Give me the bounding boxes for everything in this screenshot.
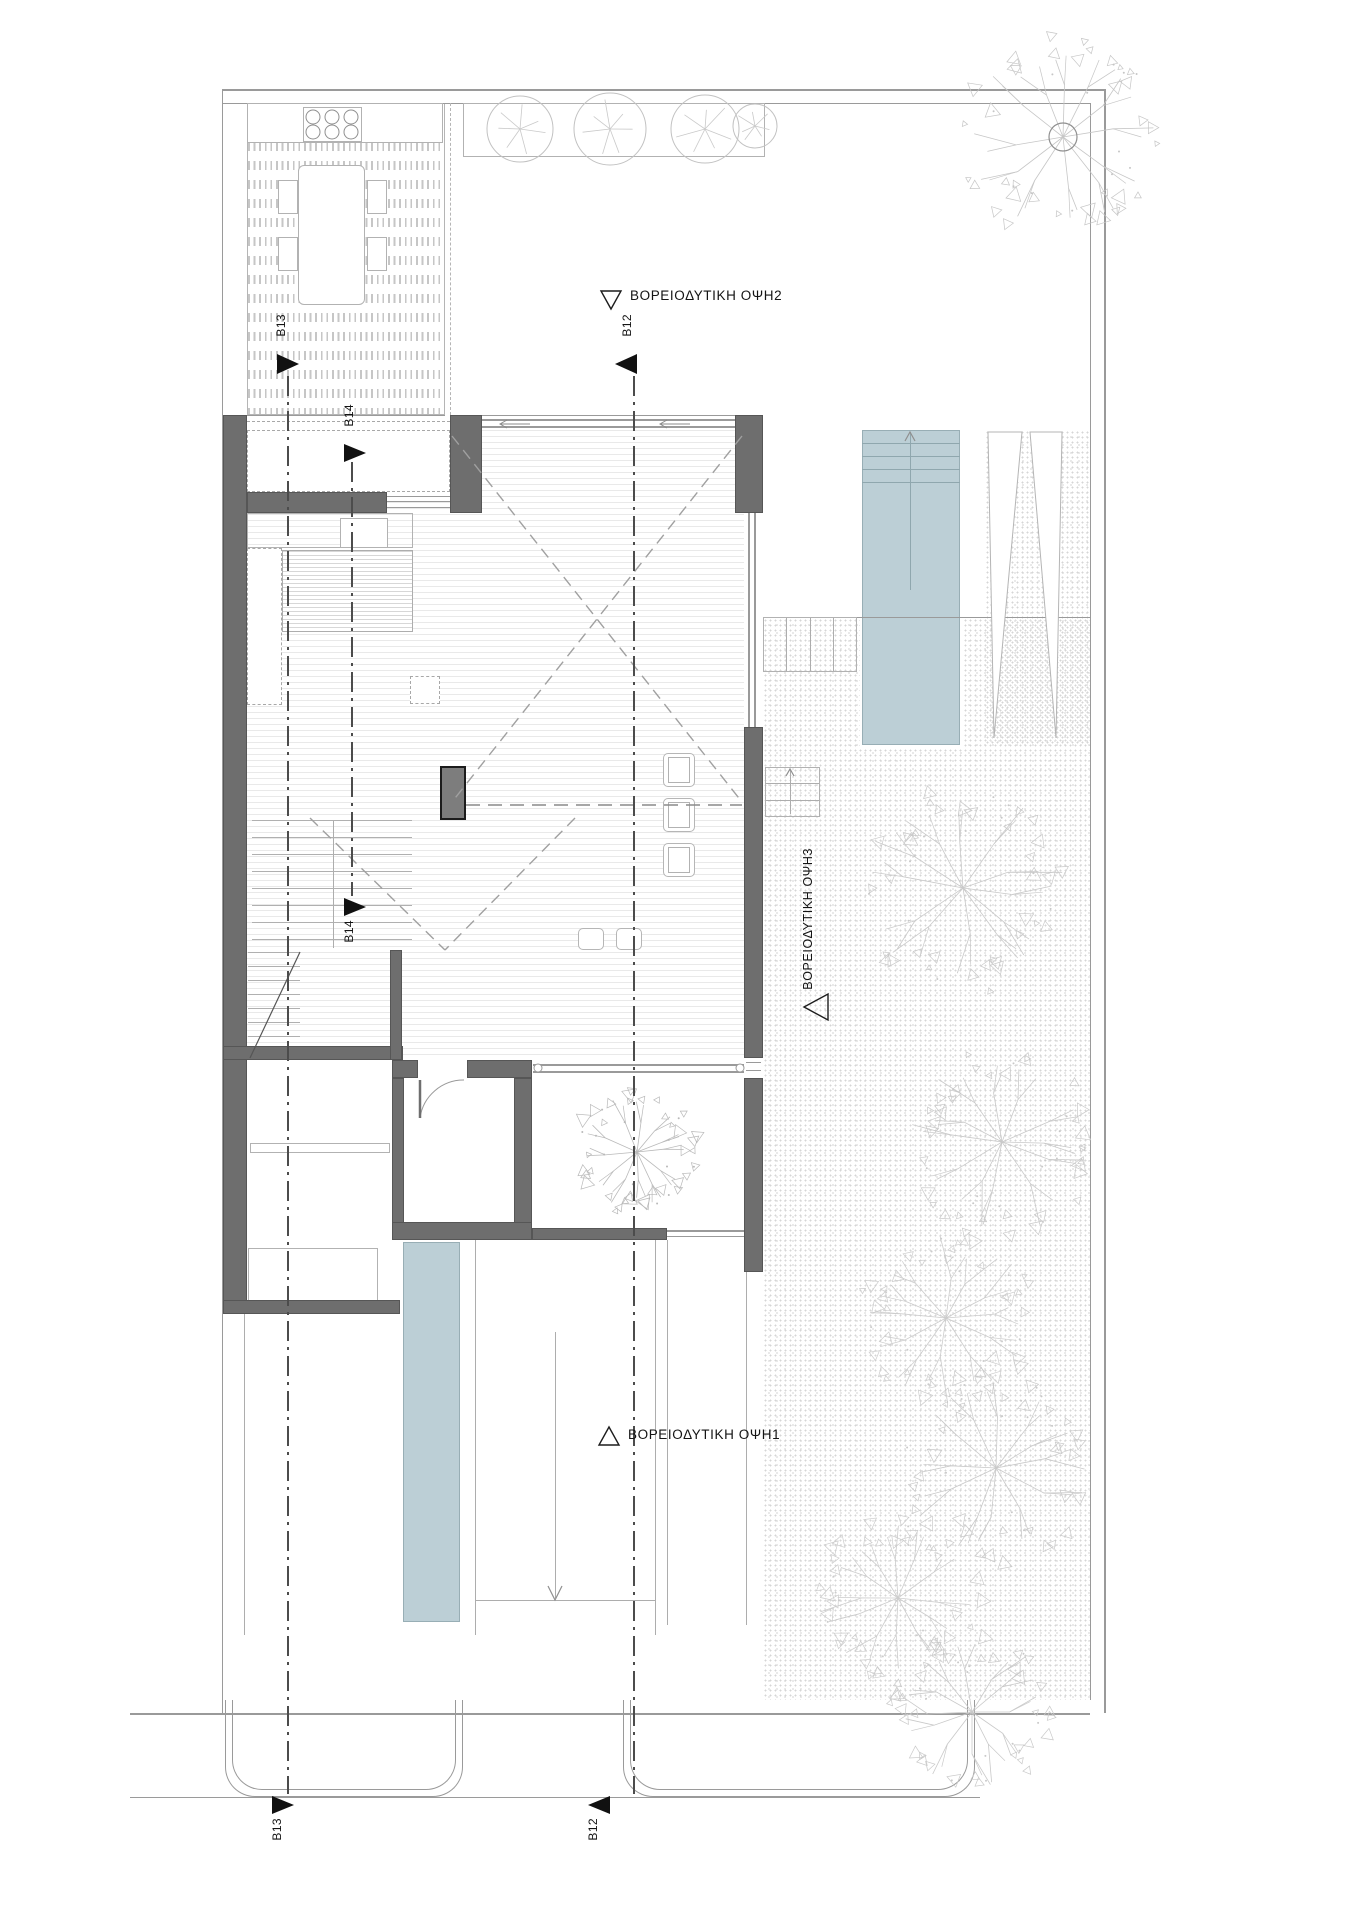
section-arrow <box>344 898 366 916</box>
elevation-triangle <box>804 994 828 1020</box>
section-line <box>287 376 289 1794</box>
elevation-triangle <box>599 1427 619 1445</box>
tree <box>868 786 1068 994</box>
elevation-label-bottom: ΒΟΡΕΙΟΔΥΤΙΚΗ ΟΨΗ1 <box>628 1427 780 1442</box>
section-label: B13 <box>270 1818 284 1841</box>
shrub <box>671 95 739 163</box>
tree <box>887 1629 1056 1787</box>
section-label: B14 <box>342 920 356 943</box>
tree <box>817 1515 991 1682</box>
tree <box>962 32 1159 230</box>
elevation-label-right: ΒΟΡΕΙΟΔΥΤΙΚΗ ΟΨΗ3 <box>801 848 815 990</box>
shrub <box>733 104 777 148</box>
section-arrow <box>344 444 366 462</box>
section-label: B14 <box>342 404 356 427</box>
section-label: B12 <box>586 1818 600 1841</box>
section-label: B13 <box>274 314 288 337</box>
section-line <box>351 462 353 896</box>
section-arrow <box>277 354 299 374</box>
section-arrow <box>615 354 637 374</box>
section-arrow <box>272 1796 294 1814</box>
section-line <box>633 376 635 1794</box>
elevation-label-top: ΒΟΡΕΙΟΔΥΤΙΚΗ ΟΨΗ2 <box>630 288 782 303</box>
tree <box>912 1052 1090 1242</box>
tree <box>906 1367 1086 1569</box>
tree <box>860 1234 1034 1405</box>
floor-plan-canvas: ΒΟΡΕΙΟΔΥΤΙΚΗ ΟΨΗ2 ΒΟΡΕΙΟΔΥΤΙΚΗ ΟΨΗ1 ΒΟΡΕ… <box>0 0 1358 1920</box>
shrub <box>574 93 646 165</box>
tree <box>576 1088 704 1214</box>
shrub <box>487 96 553 162</box>
elevation-triangle <box>601 291 621 309</box>
section-label: B12 <box>620 314 634 337</box>
section-arrow <box>588 1796 610 1814</box>
